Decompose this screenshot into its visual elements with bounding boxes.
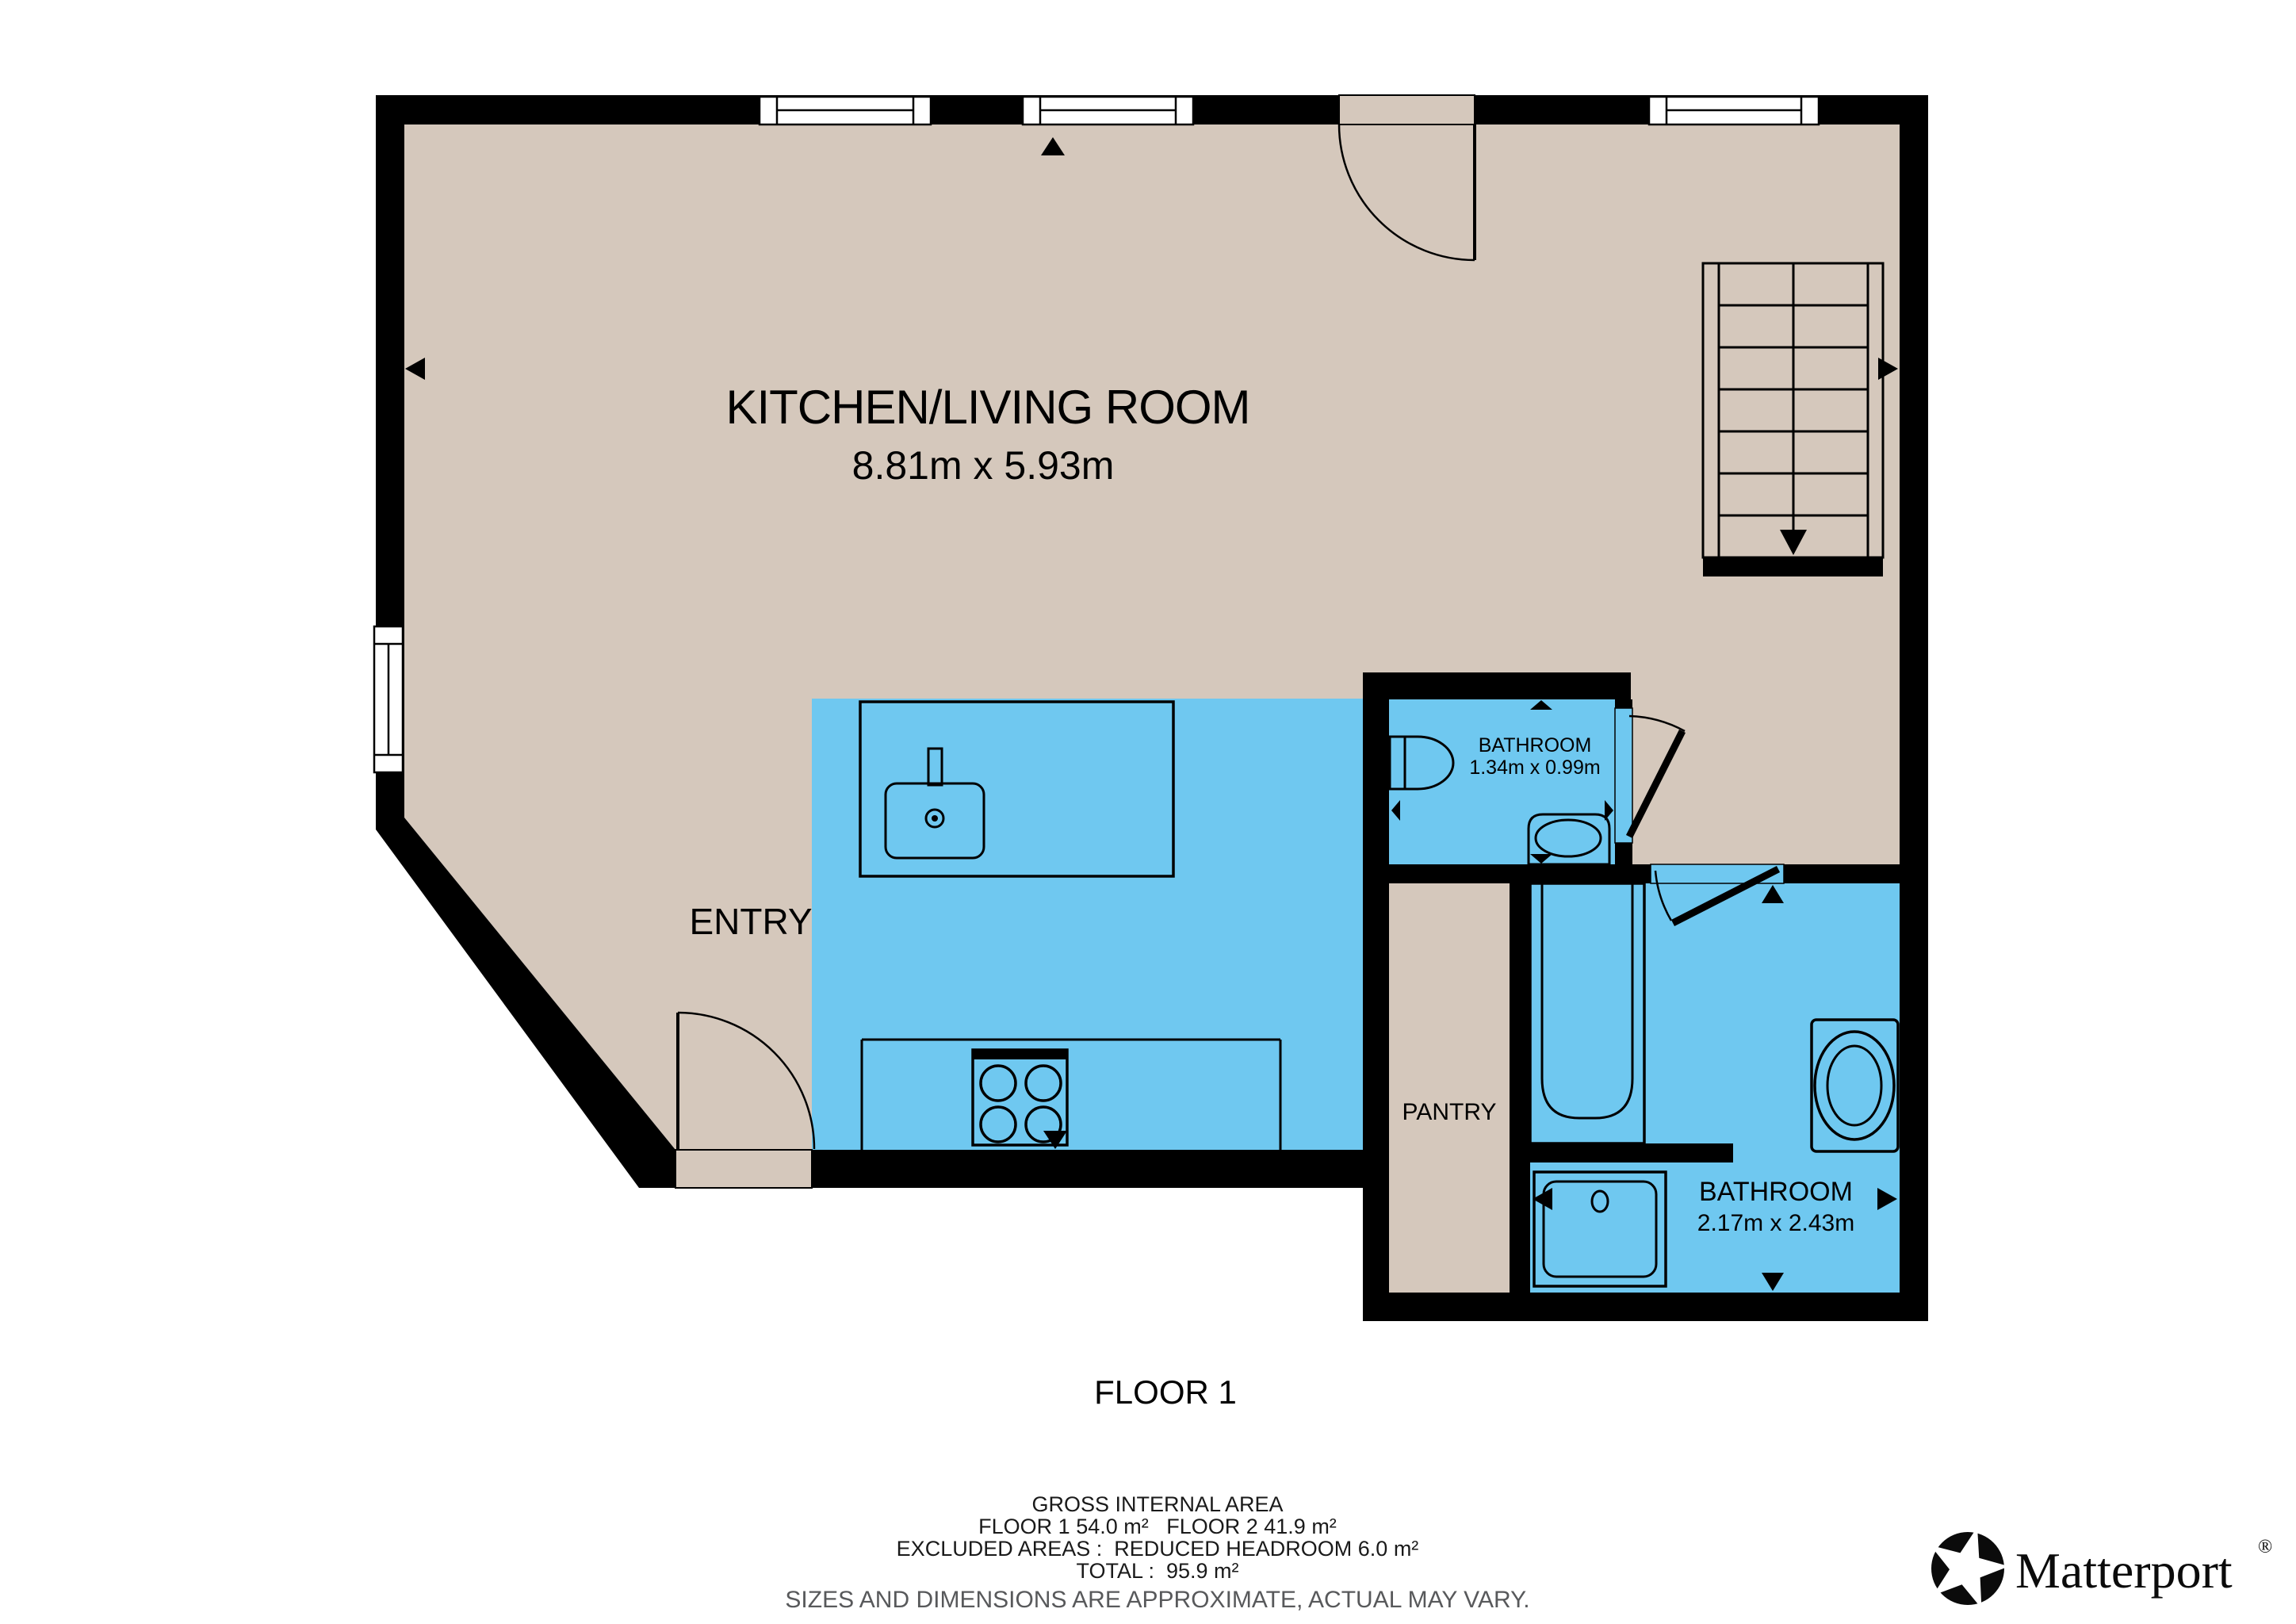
wall-bottom (1363, 1293, 1928, 1321)
wall-tub-divider (1524, 1143, 1733, 1162)
footer-total-area: TOTAL : 95.9 m² (1076, 1559, 1238, 1583)
door-threshold-top (1339, 95, 1475, 124)
room-dims-bathroom-small: 1.34m x 0.99m (1469, 756, 1600, 779)
room-label-bathroom-large: BATHROOM (1699, 1177, 1853, 1207)
bathroom-small-floor (1389, 699, 1615, 864)
wall-west-interior (1363, 672, 1389, 1293)
registered-trademark-icon: ® (2258, 1537, 2272, 1557)
window-top-3 (1649, 97, 1819, 124)
room-label-entry: ENTRY (689, 901, 812, 942)
room-label-pantry: PANTRY (1402, 1099, 1497, 1125)
floor-plan-page: KITCHEN/LIVING ROOM 8.81m x 5.93m ENTRY … (0, 0, 2296, 1624)
matterport-wordmark: Matterport (2015, 1542, 2233, 1599)
wall-right (1900, 95, 1928, 1321)
wall-bathroom-small-top (1363, 672, 1631, 699)
wall-pantry-right (1510, 883, 1530, 1293)
room-dims-bathroom-large: 2.17m x 2.43m (1697, 1210, 1854, 1236)
room-label-kitchen-living: KITCHEN/LIVING ROOM (725, 381, 1249, 434)
room-dims-kitchen-living: 8.81m x 5.93m (852, 443, 1115, 488)
window-top-2 (1023, 97, 1193, 124)
room-label-bathroom-small: BATHROOM (1479, 734, 1592, 756)
floor-label: FLOOR 1 (1094, 1373, 1237, 1411)
footer: GROSS INTERNAL AREA FLOOR 1 54.0 m² FLOO… (785, 1492, 1529, 1613)
footer-excluded-areas: EXCLUDED AREAS : REDUCED HEADROOM 6.0 m² (897, 1537, 1419, 1561)
footer-disclaimer: SIZES AND DIMENSIONS ARE APPROXIMATE, AC… (785, 1587, 1529, 1613)
matterport-logo: Matterport ® (1931, 1527, 2273, 1609)
wall-kitchen-bottom (812, 1150, 1363, 1188)
footer-gia-title: GROSS INTERNAL AREA (1031, 1492, 1283, 1516)
matterport-logo-icon (1931, 1527, 2009, 1609)
stairs-base-wall (1703, 557, 1883, 576)
floor-plan: KITCHEN/LIVING ROOM 8.81m x 5.93m ENTRY … (0, 0, 2296, 1624)
window-left (374, 626, 403, 772)
window-top-1 (760, 97, 931, 124)
door-threshold-bathroom-small (1615, 708, 1632, 843)
door-threshold-entry (675, 1150, 812, 1188)
wall-mid-horizontal (1363, 864, 1900, 883)
footer-floor-areas: FLOOR 1 54.0 m² FLOOR 2 41.9 m² (978, 1515, 1337, 1538)
